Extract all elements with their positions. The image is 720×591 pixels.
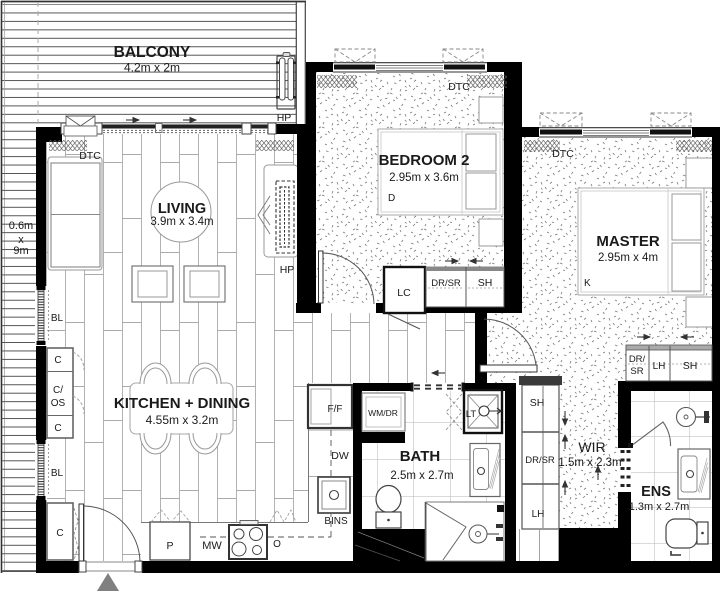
svg-text:DR/SR: DR/SR — [431, 278, 461, 289]
svg-text:2.5m x 2.7m: 2.5m x 2.7m — [390, 470, 453, 482]
svg-text:BATH: BATH — [400, 448, 441, 465]
svg-text:4.2m x 2m: 4.2m x 2m — [124, 61, 180, 75]
svg-text:ENS: ENS — [641, 484, 671, 500]
svg-text:BL: BL — [51, 468, 64, 479]
svg-text:DR/SR: DR/SR — [525, 455, 555, 466]
svg-text:4.55m x 3.2m: 4.55m x 3.2m — [146, 413, 219, 427]
svg-text:SH: SH — [478, 277, 493, 289]
svg-text:C: C — [56, 528, 63, 539]
svg-text:SH: SH — [530, 397, 545, 409]
svg-text:P: P — [166, 540, 173, 552]
svg-text:MASTER: MASTER — [596, 233, 660, 250]
svg-text:DTC: DTC — [79, 150, 101, 162]
svg-text:BL: BL — [51, 313, 64, 324]
svg-text:DR/: DR/ — [629, 354, 646, 365]
svg-text:K: K — [584, 278, 591, 289]
svg-text:WIR: WIR — [578, 439, 605, 455]
svg-text:D: D — [388, 193, 395, 204]
svg-text:1.5m x 2.3m: 1.5m x 2.3m — [558, 457, 621, 469]
svg-text:SR: SR — [630, 366, 643, 377]
svg-text:3.9m x 3.4m: 3.9m x 3.4m — [150, 216, 213, 228]
svg-text:LC: LC — [397, 287, 411, 299]
svg-text:BINS: BINS — [324, 516, 348, 527]
svg-text:LIVING: LIVING — [158, 201, 206, 217]
svg-text:MW: MW — [202, 540, 222, 552]
svg-text:LH: LH — [532, 509, 545, 520]
svg-text:0.6m: 0.6m — [9, 220, 33, 232]
svg-text:HP: HP — [280, 264, 295, 276]
svg-text:OS: OS — [51, 398, 66, 409]
svg-text:C: C — [54, 355, 61, 366]
svg-text:F/F: F/F — [328, 404, 343, 415]
svg-text:C/: C/ — [53, 385, 63, 396]
svg-text:SH: SH — [683, 360, 698, 372]
svg-text:HP: HP — [277, 112, 292, 124]
svg-text:O: O — [273, 539, 281, 550]
svg-text:DTC: DTC — [552, 148, 574, 160]
svg-text:DTC: DTC — [448, 81, 470, 93]
svg-text:2.95m x 3.6m: 2.95m x 3.6m — [389, 172, 459, 184]
svg-text:BALCONY: BALCONY — [114, 44, 191, 61]
svg-text:WM/DR: WM/DR — [368, 408, 398, 418]
svg-text:9m: 9m — [13, 245, 28, 257]
svg-text:LT: LT — [466, 409, 477, 420]
svg-text:1.3m x 2.7m: 1.3m x 2.7m — [629, 501, 690, 513]
svg-text:KITCHEN + DINING: KITCHEN + DINING — [114, 395, 250, 412]
svg-text:DW: DW — [331, 450, 349, 462]
svg-text:LH: LH — [653, 361, 666, 372]
svg-text:C: C — [54, 423, 61, 434]
svg-text:BEDROOM 2: BEDROOM 2 — [379, 152, 470, 169]
svg-text:2.95m x 4m: 2.95m x 4m — [598, 252, 658, 264]
